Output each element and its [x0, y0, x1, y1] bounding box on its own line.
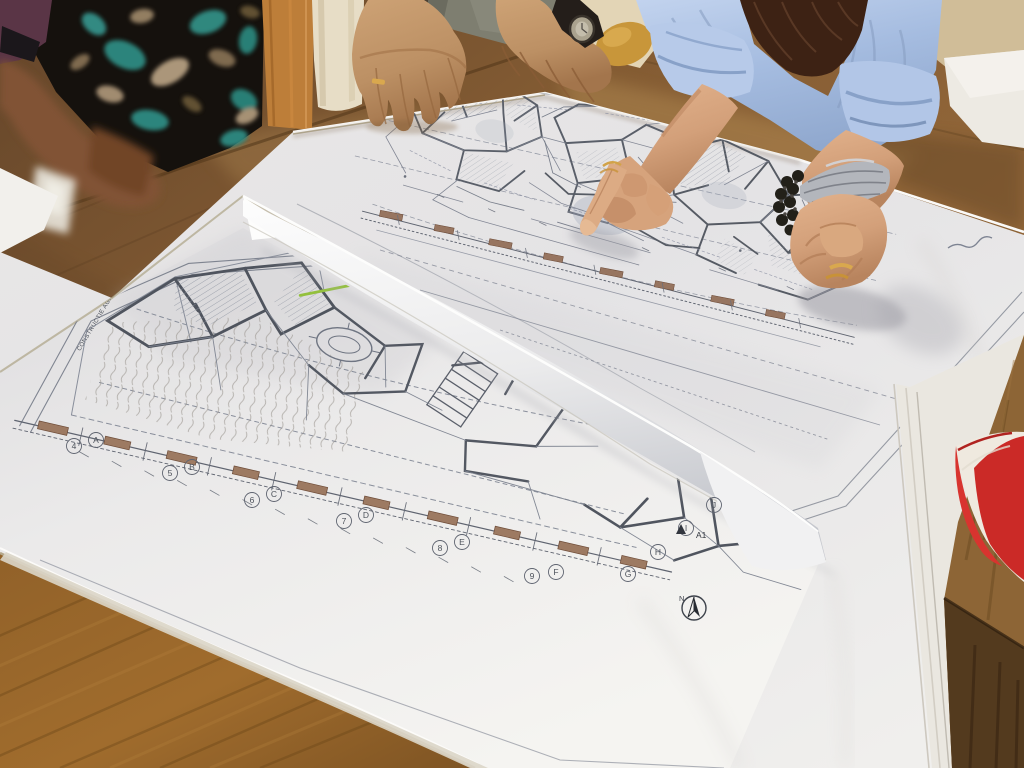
svg-text:N: N [679, 594, 684, 603]
svg-text:7: 7 [342, 516, 347, 526]
svg-text:H: H [655, 547, 661, 557]
svg-text:B: B [189, 462, 195, 472]
svg-text:D: D [363, 510, 369, 520]
svg-text:5: 5 [168, 468, 173, 478]
svg-text:8: 8 [438, 543, 443, 553]
svg-text:A: A [93, 435, 99, 445]
svg-text:E: E [459, 537, 465, 547]
svg-text:G: G [625, 569, 632, 579]
svg-text:I: I [685, 523, 687, 533]
svg-text:6: 6 [250, 495, 255, 505]
svg-text:A1: A1 [696, 530, 707, 540]
svg-text:4: 4 [72, 441, 77, 451]
svg-text:9: 9 [530, 571, 535, 581]
svg-text:J: J [712, 500, 716, 510]
svg-text:F: F [553, 567, 558, 577]
svg-text:C: C [271, 489, 277, 499]
